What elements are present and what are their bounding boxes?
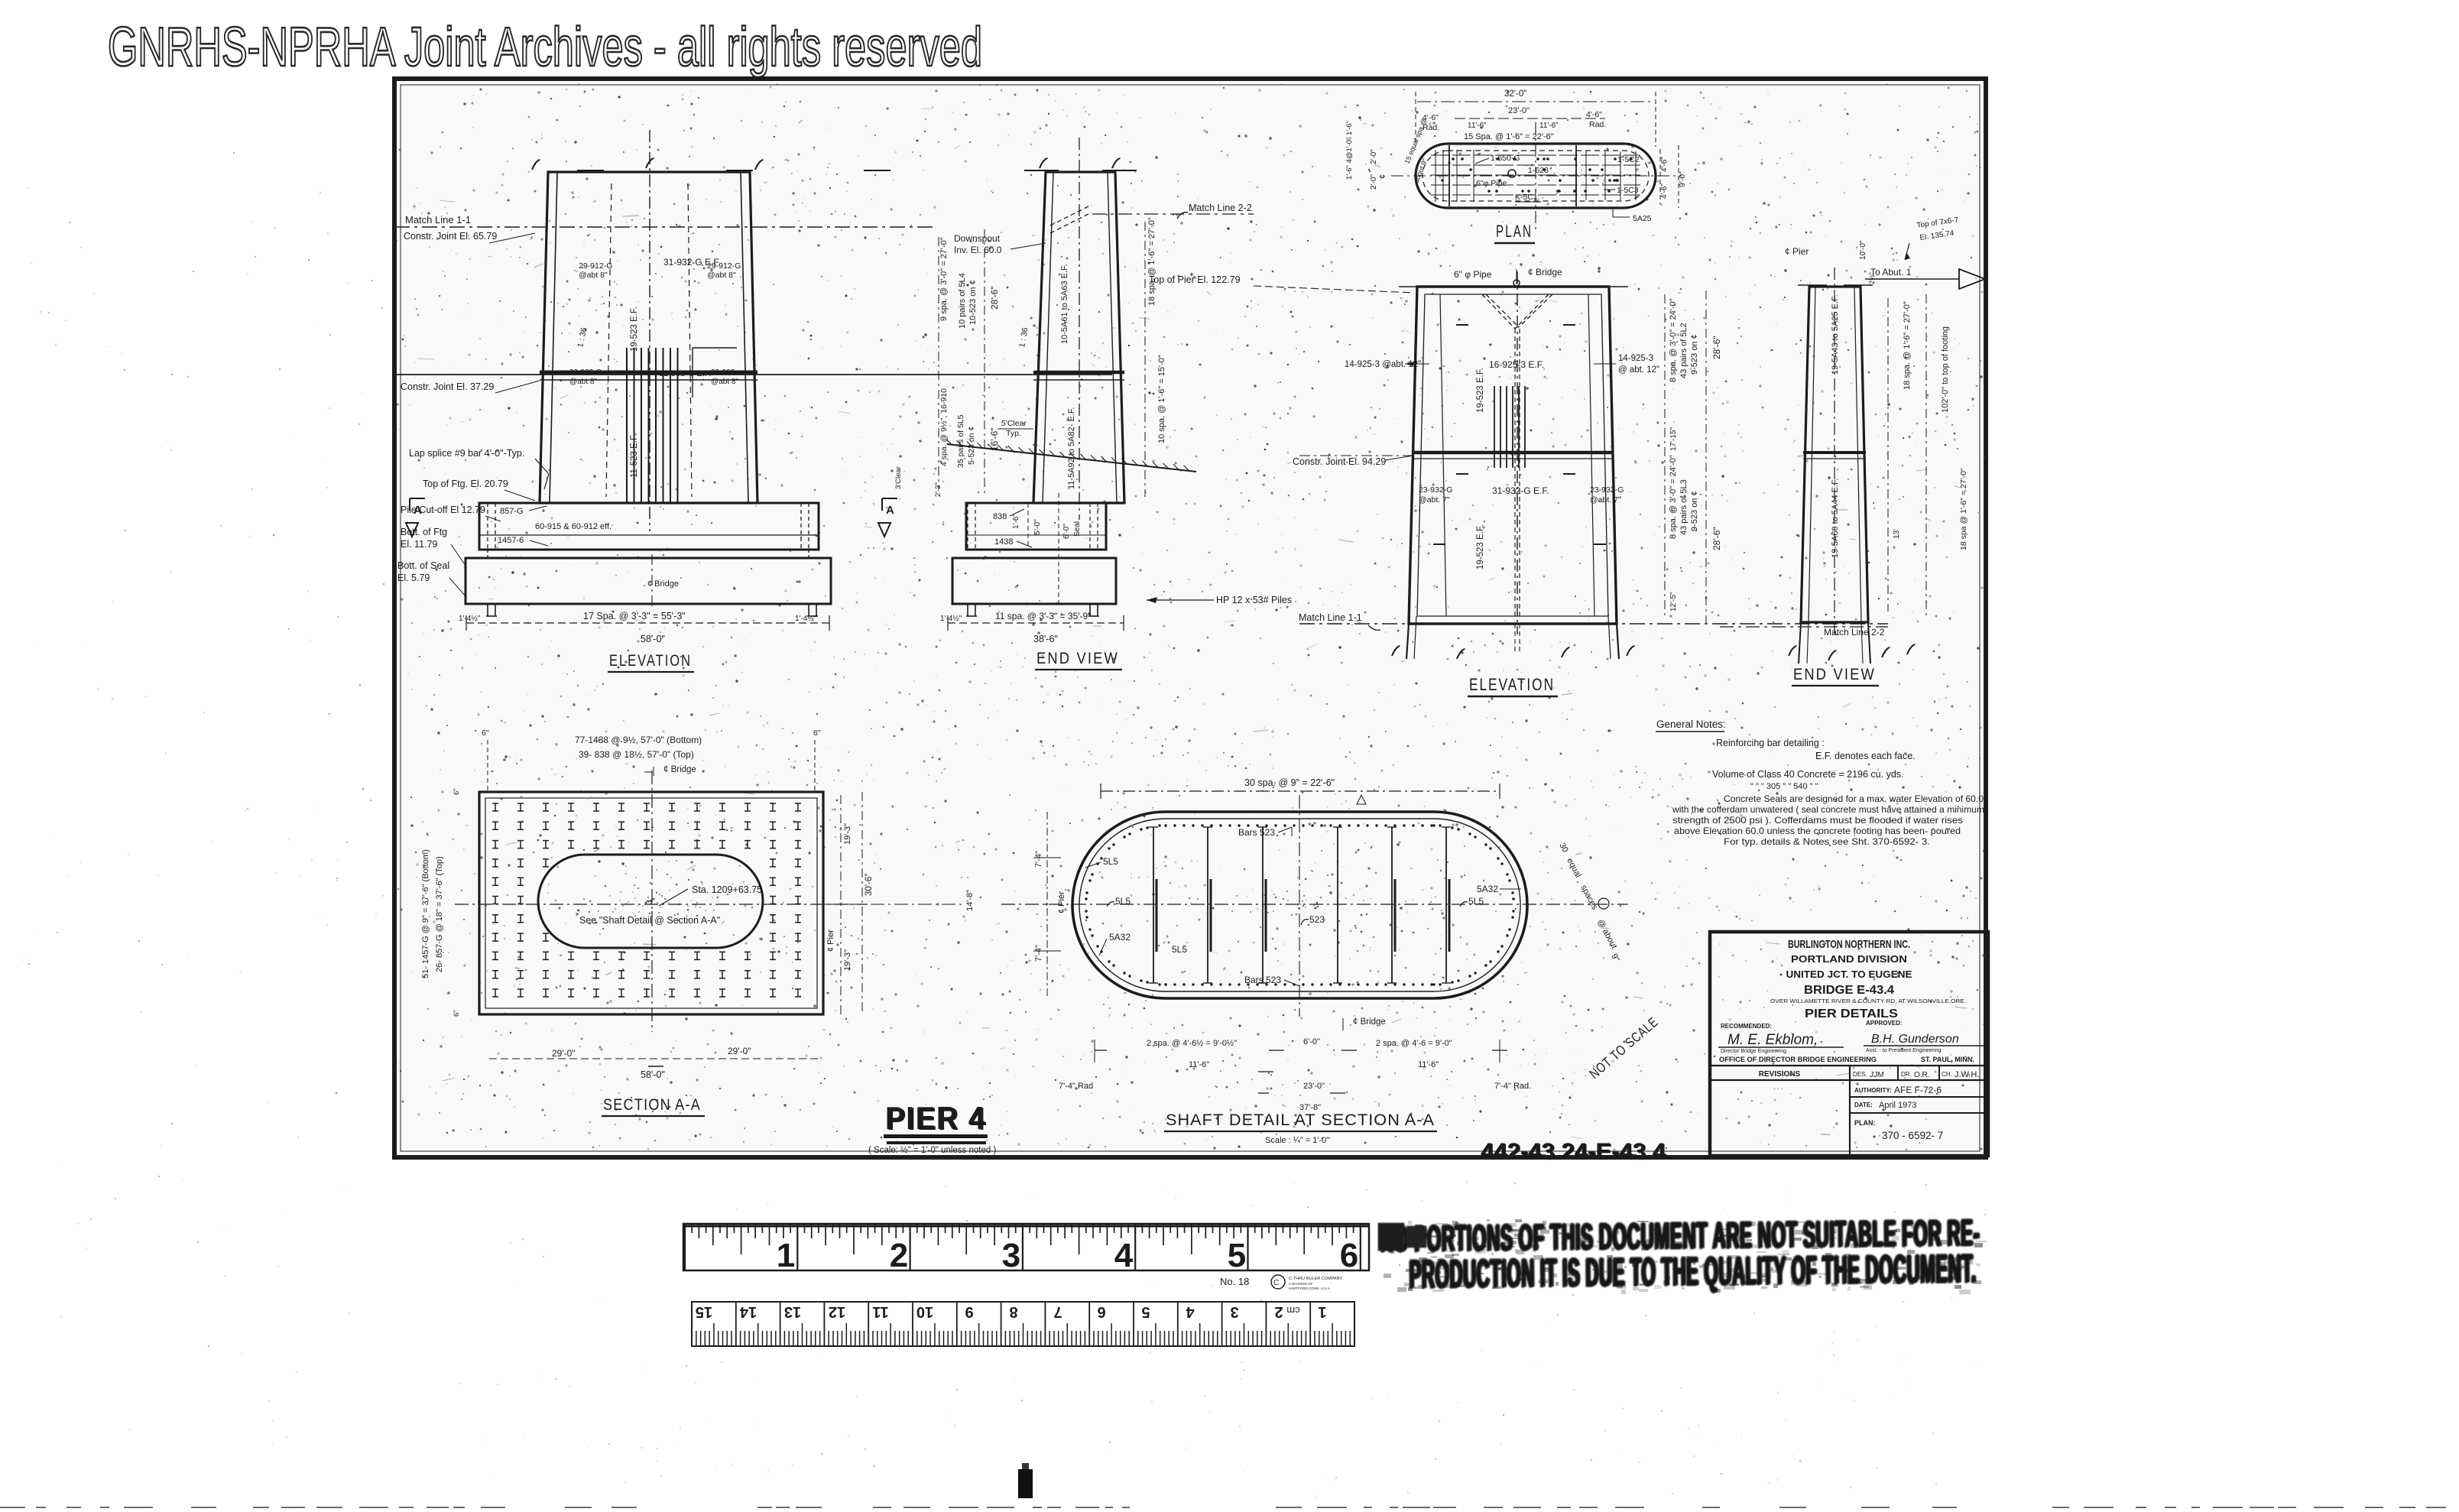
svg-text:10 spa. @ 1'-6" = 15'-0": 10 spa. @ 1'-6" = 15'-0" <box>1157 355 1166 443</box>
svg-text:19'-3": 19'-3" <box>843 949 852 971</box>
svg-text:UNITED JCT. TO EUGENE: UNITED JCT. TO EUGENE <box>1786 969 1912 980</box>
svg-text:1457-6: 1457-6 <box>498 536 524 545</box>
svg-text:J.W.H.: J.W.H. <box>1955 1070 1979 1079</box>
svg-text:23'-0": 23'-0" <box>1303 1082 1325 1091</box>
svg-text:11'-6": 11'-6" <box>1189 1060 1209 1069</box>
svg-text:8 spa. @ 3'-0" = 24'-0": 8 spa. @ 3'-0" = 24'-0" <box>1669 455 1678 539</box>
svg-text:1'-4½": 1'-4½" <box>459 615 481 623</box>
svg-text:BURLINGTON NORTHERN INC.: BURLINGTON NORTHERN INC. <box>1788 939 1910 951</box>
svg-text:1-5C3: 1-5C3 <box>1617 186 1639 195</box>
svg-text:¢ Bridge: ¢ Bridge <box>1353 1017 1386 1027</box>
svg-text:AUTHORITY:: AUTHORITY: <box>1854 1087 1892 1094</box>
svg-text:838: 838 <box>993 512 1007 521</box>
svg-text:Match Line 1-1: Match Line 1-1 <box>1299 612 1362 623</box>
svg-text:Match Line 1-1: Match Line 1-1 <box>405 214 471 226</box>
svg-text:5L5: 5L5 <box>1468 896 1484 907</box>
svg-text:18 spa. @ 1'-6" = 27'-0": 18 spa. @ 1'-6" = 27'-0" <box>1147 217 1157 306</box>
svg-text:A DIVISION OF: A DIVISION OF <box>1289 1282 1313 1286</box>
svg-text:PORTLAND DIVISION: PORTLAND DIVISION <box>1791 953 1907 965</box>
svg-text:@abt 8": @abt 8" <box>569 378 597 386</box>
svg-text:Concrete Seals are designed: Concrete Seals are designed for a max. w… <box>1724 793 1984 804</box>
svg-text:C-THRU RULER COMPANY: C-THRU RULER COMPANY <box>1289 1277 1343 1281</box>
svg-text:ELEVATION: ELEVATION <box>609 652 692 670</box>
svg-text:B.H. Gunderson: B.H. Gunderson <box>1871 1033 1959 1046</box>
svg-text:3'Clear: 3'Clear <box>894 466 903 489</box>
svg-text:6'-0": 6'-0" <box>1062 524 1071 539</box>
svg-text:523: 523 <box>1309 914 1325 925</box>
svg-text:1: 1 <box>777 1237 795 1274</box>
svg-text:442-43.24-E-43.4: 442-43.24-E-43.4 <box>1482 1140 1667 1165</box>
svg-text:8: 8 <box>1009 1303 1017 1320</box>
svg-text:7'-4" Rad: 7'-4" Rad <box>1059 1082 1093 1091</box>
svg-text:OVER WILLAMETTE RIVER & CO: OVER WILLAMETTE RIVER & COUNTY RD, AT WI… <box>1770 998 1966 1004</box>
svg-text:Constr. Joint El. 65.79: Constr. Joint El. 65.79 <box>404 231 497 242</box>
svg-text:2'-0": 2'-0" <box>1370 174 1378 190</box>
svg-text:29-912-G: 29-912-G <box>707 261 741 271</box>
svg-text:Sta. 1209+63.75: Sta. 1209+63.75 <box>692 884 762 895</box>
svg-text:4: 4 <box>1114 1237 1134 1274</box>
svg-text:11 spa. @ 3'-3" = 35'-9": 11 spa. @ 3'-3" = 35'-9" <box>995 611 1091 621</box>
svg-text:Scale : ¼" = 1'-0": Scale : ¼" = 1'-0" <box>1265 1136 1329 1145</box>
svg-text:5A25: 5A25 <box>1633 214 1652 223</box>
svg-text:7'-4": 7'-4" <box>1034 851 1043 868</box>
svg-text:29-912-G: 29-912-G <box>579 261 612 271</box>
svg-text:3: 3 <box>1230 1303 1238 1320</box>
svg-text:43 pairs of 5L3: 43 pairs of 5L3 <box>1679 479 1689 535</box>
svg-text:2 spa. @ 4'-6½ = 9'-0½": 2 spa. @ 4'-6½ = 9'-0½" <box>1147 1039 1237 1048</box>
svg-text:19-523 E.F.: 19-523 E.F. <box>1476 524 1485 569</box>
svg-text:9-523 on ¢: 9-523 on ¢ <box>1690 334 1699 375</box>
svg-text:5'Clear: 5'Clear <box>1001 419 1027 428</box>
svg-text:31-908-G E.F.: 31-908-G E.F. <box>659 369 711 378</box>
svg-text:11-523 E.F.: 11-523 E.F. <box>630 433 639 478</box>
svg-text:AFE F-72-6: AFE F-72-6 <box>1894 1085 1942 1095</box>
svg-text:Asst. - to President Engin: Asst. - to President Engineering <box>1866 1048 1942 1053</box>
svg-text:30'-6": 30'-6" <box>865 874 874 896</box>
svg-text:@ abt. 12": @ abt. 12" <box>1618 365 1659 375</box>
svg-text:13: 13 <box>784 1303 801 1320</box>
svg-text:HP 12 x 53# Piles: HP 12 x 53# Piles <box>1216 595 1292 605</box>
svg-text:¢ Pier: ¢ Pier <box>826 930 835 952</box>
svg-text:9: 9 <box>965 1303 973 1320</box>
svg-text:DATE:: DATE: <box>1854 1102 1873 1108</box>
svg-text:PIER DETAILS: PIER DETAILS <box>1805 1007 1898 1020</box>
svg-text:PLAN:: PLAN: <box>1854 1119 1876 1127</box>
svg-text:11'-6": 11'-6" <box>1539 122 1559 130</box>
svg-text:¢ Pier: ¢ Pier <box>1785 246 1809 257</box>
svg-text:1-5C2: 1-5C2 <box>1617 155 1640 164</box>
svg-text:2'-3": 2'-3" <box>934 482 942 497</box>
svg-text:OFFICE OF DIRECTOR BRIDGE ENGI: OFFICE OF DIRECTOR BRIDGE ENGINEERING <box>1719 1056 1877 1063</box>
svg-text:Downspout: Downspout <box>954 233 1001 244</box>
svg-text:370 - 6592- 7: 370 - 6592- 7 <box>1882 1130 1943 1141</box>
svg-text:8 spa. @ 3'-0" = 24'-0": 8 spa. @ 3'-0" = 24'-0" <box>1669 298 1678 382</box>
svg-text:Top of Pier El. 122.79: Top of Pier El. 122.79 <box>1149 274 1241 285</box>
svg-text:SHAFT DETAIL AT SECTION A: SHAFT DETAIL AT SECTION A-A <box>1166 1111 1435 1129</box>
svg-text:4'-6": 4'-6" <box>1586 110 1602 119</box>
svg-text:K-5C1.: K-5C1. <box>1515 193 1540 202</box>
svg-text:@abt 8": @abt 8" <box>707 271 736 280</box>
svg-text:Match Line 2-2: Match Line 2-2 <box>1824 627 1885 638</box>
svg-text:Rad.: Rad. <box>1589 120 1606 129</box>
svg-text:A: A <box>886 504 894 517</box>
svg-text:13': 13' <box>1893 529 1901 539</box>
svg-text:cm: cm <box>1286 1305 1299 1316</box>
svg-text:" " " 305: " " " 305 " " 540 " " <box>1750 782 1818 791</box>
svg-text:10: 10 <box>916 1303 933 1320</box>
svg-text:See "Shaft Detail @ Sectio: See "Shaft Detail @ Section A-A" <box>579 915 720 926</box>
svg-text:6: 6 <box>1097 1303 1105 1320</box>
svg-text:7: 7 <box>1053 1303 1062 1320</box>
svg-text:5L5: 5L5 <box>1115 896 1131 907</box>
svg-text:PLAN: PLAN <box>1496 222 1533 241</box>
svg-text:14-925-3: 14-925-3 <box>1618 354 1653 363</box>
svg-text:11-5A92 to 5A82- E.F.: 11-5A92 to 5A82- E.F. <box>1067 407 1076 489</box>
svg-text:58'-0": 58'-0" <box>641 634 665 644</box>
svg-text:O.R.: O.R. <box>1914 1071 1930 1079</box>
svg-text:102'-0" to top of footing: 102'-0" to top of footing <box>1941 326 1950 413</box>
svg-text:Typ.: Typ. <box>1006 429 1021 438</box>
svg-text:1438: 1438 <box>994 537 1013 547</box>
svg-text:6": 6" <box>453 788 461 795</box>
svg-text:2'-0": 2'-0" <box>1370 149 1378 164</box>
svg-text:6": 6" <box>453 1010 461 1017</box>
svg-text:¢ Bridge: ¢ Bridge <box>1528 267 1562 277</box>
svg-text:5'-0": 5'-0" <box>1033 519 1042 535</box>
svg-text:5A32: 5A32 <box>1477 884 1498 894</box>
svg-text:Bars 523: Bars 523 <box>1238 827 1275 838</box>
svg-text:5A32: 5A32 <box>1109 932 1131 943</box>
svg-text:@abt. 7": @abt. 7" <box>1590 495 1621 505</box>
svg-text:19-5A43 to 5A25 E.F.: 19-5A43 to 5A25 E.F. <box>1831 294 1840 375</box>
svg-text:BRIDGE E-43.4: BRIDGE E-43.4 <box>1804 984 1894 997</box>
svg-text:6"φ Pipe: 6"φ Pipe <box>1476 179 1507 188</box>
svg-text:ELEVATION: ELEVATION <box>1469 675 1555 694</box>
svg-text:29'-0": 29'-0" <box>728 1046 751 1056</box>
svg-text:above Elevation 60.0 unles: above Elevation 60.0 unless the concrete… <box>1674 826 1961 836</box>
svg-text:10'-0": 10'-0" <box>1859 240 1867 260</box>
svg-text:Top of Ftg. El. 20.79: Top of Ftg. El. 20.79 <box>423 479 508 489</box>
svg-text:29'-0": 29'-0" <box>552 1048 576 1059</box>
svg-text:19'-3": 19'-3" <box>843 823 852 845</box>
svg-text:77-1438 @ 9½, 57'-0" (Bott: 77-1438 @ 9½, 57'-0" (Bottom) <box>575 735 702 745</box>
svg-text:29-908: 29-908 <box>711 368 735 377</box>
svg-text:4'-6": 4'-6" <box>1660 157 1669 172</box>
svg-text:12'-5": 12'-5" <box>1669 592 1678 612</box>
svg-text:10 pairs of 5L4: 10 pairs of 5L4 <box>958 273 967 329</box>
svg-text:15 Spa. @ 1'-6" = 22'-6": 15 Spa. @ 1'-6" = 22'-6" <box>1464 132 1554 141</box>
svg-text:51- 1457-G @ 9" = 37'-6" (Bot: 51- 1457-G @ 9" = 37'-6" (Bottom) <box>421 849 430 978</box>
svg-text:¢ Pier: ¢ Pier <box>1057 891 1066 913</box>
svg-text:DR.: DR. <box>1901 1071 1912 1078</box>
svg-text:16-925-3 E.F.: 16-925-3 E.F. <box>1489 359 1544 370</box>
svg-text:Lap splice #9 bar 4'-0"-Typ.: Lap splice #9 bar 4'-0"-Typ. <box>409 448 524 459</box>
svg-text:857-G: 857-G <box>500 507 524 516</box>
svg-text:10-5A61 to 5A63 E.F.: 10-5A61 to 5A63 E.F. <box>1060 264 1069 344</box>
svg-text:Bars 523: Bars 523 <box>1244 975 1281 985</box>
svg-text:Inv. El. 60.0: Inv. El. 60.0 <box>954 245 1002 255</box>
svg-text:APPROVED:: APPROVED: <box>1866 1020 1903 1027</box>
svg-text:@abt 8": @abt 8" <box>711 378 738 386</box>
svg-text:SECTION A-A: SECTION A-A <box>603 1096 701 1114</box>
svg-text:6": 6" <box>813 728 821 738</box>
svg-text:14'-8": 14'-8" <box>965 890 975 911</box>
svg-text:6": 6" <box>482 728 489 738</box>
svg-text:strength of 2500 psi ). Cof: strength of 2500 psi ). Cofferdams must … <box>1672 815 1963 826</box>
svg-text:18 spa @ 1'-6" = 27'-0": 18 spa @ 1'-6" = 27'-0" <box>1959 468 1968 550</box>
svg-text:23'-0": 23'-0" <box>1508 106 1530 115</box>
svg-text:GNRHS-NPRHA Joint Archives - a: GNRHS-NPRHA Joint Archives - all rights … <box>108 17 982 78</box>
svg-text:9-523 on ¢: 9-523 on ¢ <box>1690 491 1699 531</box>
svg-text:REVISIONS: REVISIONS <box>1759 1070 1801 1079</box>
svg-text:6'-0": 6'-0" <box>1303 1037 1320 1046</box>
svg-text:El. 11.79: El. 11.79 <box>401 539 437 550</box>
svg-text:7'-4" Rad.: 7'-4" Rad. <box>1494 1082 1531 1091</box>
svg-text:Bott. of Seal: Bott. of Seal <box>397 560 449 571</box>
svg-text:9'-0": 9'-0" <box>1678 171 1687 187</box>
svg-text:El. 5.79: El. 5.79 <box>397 573 430 583</box>
svg-text:26- 857-G @ 18" = 37'-6" (Top: 26- 857-G @ 18" = 37'-6" (Top) <box>435 856 444 972</box>
svg-text:43 pairs of 5L2: 43 pairs of 5L2 <box>1679 323 1689 378</box>
svg-text:9 spa. @ 3'-0" = 27'-0": 9 spa. @ 3'-0" = 27'-0" <box>939 237 949 321</box>
svg-text:38'-6": 38'-6" <box>1033 634 1058 644</box>
svg-text:1: 1 <box>1318 1303 1326 1320</box>
svg-text:5L5: 5L5 <box>1172 944 1187 955</box>
svg-text:@abt 8": @abt 8" <box>579 271 608 280</box>
svg-text:2: 2 <box>890 1237 908 1274</box>
svg-text:HARTFORD CONN. U.S.A.: HARTFORD CONN. U.S.A. <box>1289 1286 1331 1290</box>
svg-text:17 Spa. @ 3'-3" = 55'-3": 17 Spa. @ 3'-3" = 55'-3" <box>583 611 686 621</box>
svg-text:Constr. Joint El. 94.29: Constr. Joint El. 94.29 <box>1293 456 1386 467</box>
svg-text:3: 3 <box>1002 1237 1020 1274</box>
svg-text:1'-4½": 1'-4½" <box>795 615 817 623</box>
svg-text:23-932-G: 23-932-G <box>1590 485 1624 495</box>
svg-text:ST. PAUL, MINN.: ST. PAUL, MINN. <box>1921 1056 1974 1063</box>
svg-text:60-915 & 60-912 eff.: 60-915 & 60-912 eff. <box>535 522 612 531</box>
svg-text:Seal: Seal <box>1073 521 1082 537</box>
svg-text:58'-0": 58'-0" <box>641 1069 665 1080</box>
svg-text:2: 2 <box>1274 1303 1283 1320</box>
svg-text:Match Line 2-2: Match Line 2-2 <box>1189 203 1252 213</box>
svg-text:19-523 E.F.: 19-523 E.F. <box>630 307 639 352</box>
svg-text:END VIEW: END VIEW <box>1036 650 1119 667</box>
svg-text:END VIEW: END VIEW <box>1793 666 1876 683</box>
svg-text:5-523 on ¢: 5-523 on ¢ <box>967 427 976 465</box>
svg-text:1'-6" 4@1'-0" 1'-6": 1'-6" 4@1'-0" 1'-6" <box>1345 121 1354 180</box>
svg-text:7'-4": 7'-4" <box>1034 945 1043 962</box>
svg-text:¢: ¢ <box>1378 174 1387 179</box>
svg-text:DES.: DES. <box>1853 1071 1867 1078</box>
svg-text:32'-0": 32'-0" <box>1504 89 1526 99</box>
svg-text:15: 15 <box>696 1303 712 1320</box>
svg-text:1-650-G: 1-650-G <box>1491 154 1520 163</box>
svg-text:28'-6": 28'-6" <box>989 286 1000 310</box>
svg-text:14: 14 <box>739 1303 757 1320</box>
svg-text:18 spa. @ 1'-6" = 27'-0": 18 spa. @ 1'-6" = 27'-0" <box>1903 301 1912 390</box>
svg-text:11'-6": 11'-6" <box>1418 1060 1439 1069</box>
svg-text:JJM: JJM <box>1869 1071 1884 1079</box>
svg-text:Director Bridge Engineering: Director Bridge Engineering <box>1721 1049 1786 1054</box>
svg-text:4 spa. @ 9½", 16-910: 4 spa. @ 9½", 16-910 <box>939 388 949 466</box>
svg-text:1'-6": 1'-6" <box>1012 514 1020 529</box>
svg-text:29-908-G: 29-908-G <box>569 368 602 377</box>
svg-text:To Abut. 1: To Abut. 1 <box>1870 267 1912 277</box>
svg-text:28'-6": 28'-6" <box>1711 336 1722 359</box>
svg-text:CH.: CH. <box>1942 1071 1952 1078</box>
svg-text:General Notes:: General Notes: <box>1656 719 1726 730</box>
svg-text:( Scale: ½" = 1'-0" unless n: ( Scale: ½" = 1'-0" unless noted ) <box>868 1146 996 1155</box>
svg-text:For typ. details & Notes: For typ. details & Notes see Sht. 370-65… <box>1724 836 1930 847</box>
svg-text:23-932-G: 23-932-G <box>1419 485 1452 495</box>
svg-text:1-628: 1-628 <box>1528 166 1549 175</box>
svg-text:with the cofferdam unwatered: with the cofferdam unwatered ( seal conc… <box>1672 804 1984 815</box>
svg-text:5: 5 <box>1141 1303 1150 1320</box>
svg-text:4'-6": 4'-6" <box>1660 183 1669 199</box>
svg-text:17'-15": 17'-15" <box>1669 427 1678 451</box>
svg-text:10-523 on ¢: 10-523 on ¢ <box>968 280 978 325</box>
svg-text:No. 18: No. 18 <box>1220 1276 1249 1287</box>
svg-text:2 spa. @ 4'-6 = 9'-0": 2 spa. @ 4'-6 = 9'-0" <box>1376 1039 1452 1048</box>
svg-text:12: 12 <box>829 1303 845 1320</box>
svg-text:Volume of Class 40 Concret: Volume of Class 40 Concrete = 2196 cu. y… <box>1712 769 1904 780</box>
svg-text:PIER 4: PIER 4 <box>887 1101 988 1137</box>
svg-text:6: 6 <box>1340 1237 1358 1274</box>
svg-text:RECOMMENDED:: RECOMMENDED: <box>1721 1023 1772 1030</box>
svg-text:E.F. denotes each face.: E.F. denotes each face. <box>1815 751 1916 761</box>
svg-text:¢ Bridge: ¢ Bridge <box>663 765 696 774</box>
svg-text:Constr. Joint El. 37.29: Constr. Joint El. 37.29 <box>401 381 494 392</box>
svg-text:11'-6": 11'-6" <box>1468 122 1487 130</box>
svg-text:Reinforcing bar detailing :: Reinforcing bar detailing : <box>1716 738 1825 748</box>
svg-text:39- 838 @ 18½, 57'-0" (T: 39- 838 @ 18½, 57'-0" (Top) <box>579 749 694 760</box>
svg-text:A: A <box>414 504 422 517</box>
svg-text:1'-4½": 1'-4½" <box>940 615 962 623</box>
svg-text:C: C <box>1273 1279 1279 1287</box>
svg-text:28'-6": 28'-6" <box>1711 527 1722 550</box>
svg-text:31-932-G E.F.: 31-932-G E.F. <box>1492 485 1549 496</box>
svg-text:5: 5 <box>1228 1237 1246 1274</box>
svg-text:30 spa. @ 9" = 22'-6": 30 spa. @ 9" = 22'-6" <box>1244 777 1335 788</box>
svg-text:4: 4 <box>1186 1303 1195 1320</box>
svg-text:April 1973: April 1973 <box>1879 1101 1917 1110</box>
svg-text:5L5: 5L5 <box>1103 856 1118 867</box>
svg-text:6" φ Pipe: 6" φ Pipe <box>1454 269 1492 280</box>
svg-text:. . .: . . . <box>1773 1083 1783 1091</box>
svg-text:19-5A60 to 5A44 E.F.: 19-5A60 to 5A44 E.F. <box>1831 478 1840 558</box>
svg-text:19-523 E.F.: 19-523 E.F. <box>1476 368 1485 413</box>
svg-text:11: 11 <box>872 1303 888 1320</box>
svg-text:@abt. 7": @abt. 7" <box>1419 495 1450 505</box>
svg-text:M. E. Ekblom,: M. E. Ekblom, <box>1727 1032 1818 1048</box>
